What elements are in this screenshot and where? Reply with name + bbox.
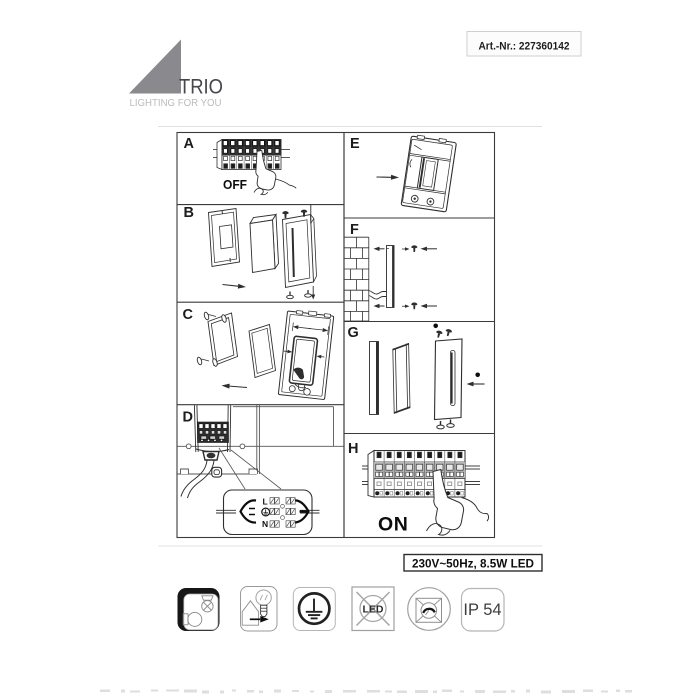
svg-text:N: N [262,519,268,529]
svg-text:OFF: OFF [223,178,247,192]
svg-text:LED: LED [363,604,384,616]
svg-text:E: E [350,136,360,152]
svg-text:H: H [348,441,358,457]
svg-text:IP 54: IP 54 [463,601,501,619]
svg-text:C: C [183,307,194,323]
svg-text:D: D [183,410,193,426]
svg-text:Art.-Nr.: 227360142: Art.-Nr.: 227360142 [479,41,570,53]
svg-text:B: B [184,205,194,221]
svg-text:A: A [184,136,195,152]
svg-text:F: F [350,222,359,238]
svg-text:230V~50Hz, 8.5W LED: 230V~50Hz, 8.5W LED [412,557,534,571]
svg-text:LIGHTING FOR YOU: LIGHTING FOR YOU [130,98,222,109]
svg-text:L: L [263,497,268,507]
svg-text:G: G [348,325,359,341]
svg-text:ON: ON [378,514,408,536]
svg-text:TRIO: TRIO [179,75,223,99]
